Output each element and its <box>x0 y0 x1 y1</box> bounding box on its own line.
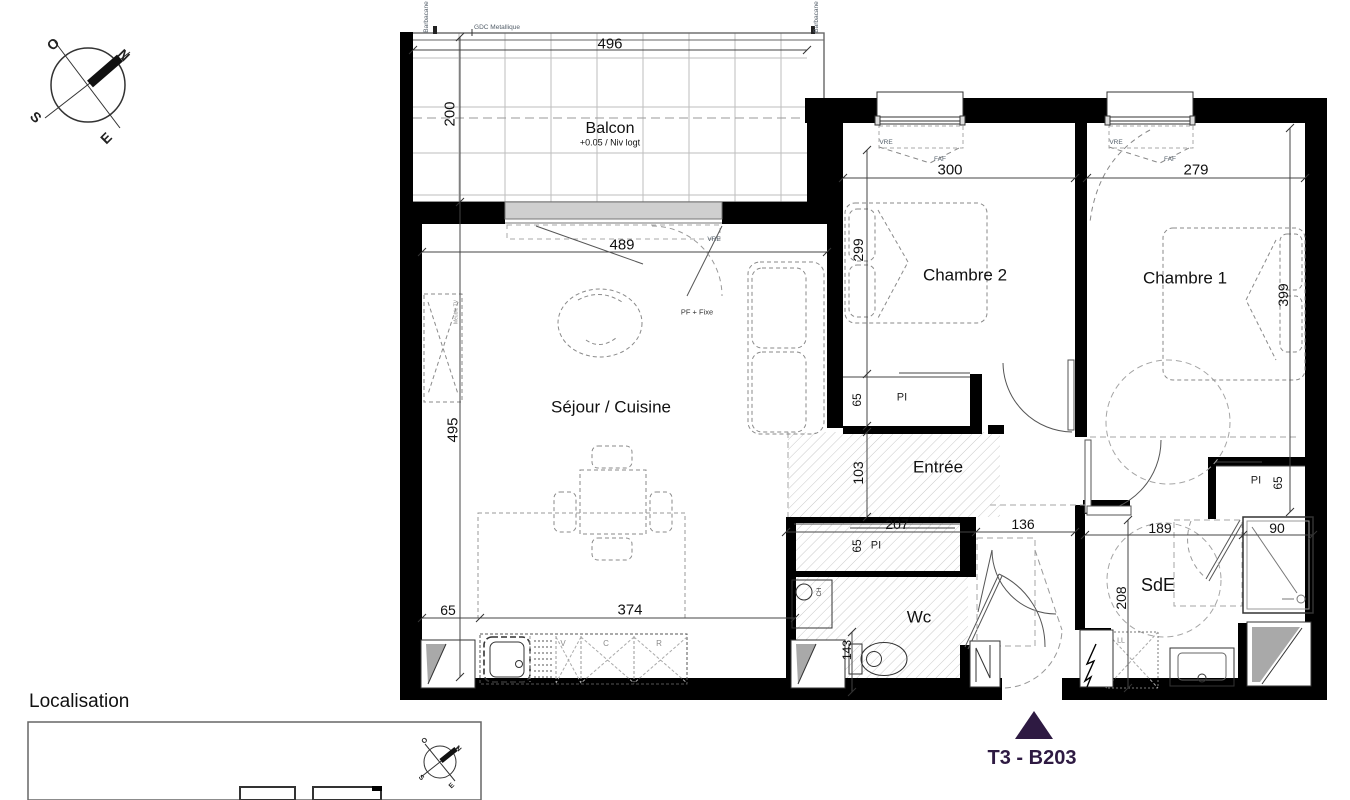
boiler-label: CH <box>817 588 823 597</box>
gdc-metallique-label: GDC Metallique <box>474 25 520 32</box>
washer-label: LL <box>1117 638 1125 645</box>
pf-fixe-label: PF + Fixe <box>681 308 713 316</box>
faf-label-bedroom2: FAF <box>934 157 946 164</box>
room-label-wc: Wc <box>907 609 932 626</box>
dim-balcony-door: 489 <box>609 238 634 253</box>
faf-label-bedroom1: FAF <box>1164 157 1176 164</box>
room-label-living: Séjour / Cuisine <box>551 399 671 416</box>
dim-shower-width: 90 <box>1269 521 1285 535</box>
dim-sde-depth: 208 <box>1114 586 1128 609</box>
dim-bedroom1-width: 279 <box>1183 163 1208 178</box>
floor-plan-svg <box>0 0 1350 800</box>
room-label-bedroom2: Chambre 2 <box>923 267 1007 284</box>
room-label-entry: Entrée <box>913 459 963 476</box>
vre-label-bedroom1: VRE <box>1109 140 1122 147</box>
cabinet-c-label: C <box>603 640 609 648</box>
localisation-heading: Localisation <box>29 692 129 711</box>
dim-entry-closet-depth: 65 <box>851 539 863 552</box>
localisation-box <box>28 722 481 800</box>
closet-label-bedroom2: PI <box>897 393 907 404</box>
dim-entry-closet-width: 207 <box>885 517 908 531</box>
tv-unit-label: Meuble TV <box>455 300 460 324</box>
dim-balcony-depth: 200 <box>443 101 458 126</box>
barbacane-label-left: Barbacane <box>424 1 431 32</box>
vre-label-bedroom2: VRE <box>879 140 892 147</box>
closet-label-bedroom1: PI <box>1251 476 1261 487</box>
dim-bedroom1-depth: 399 <box>1276 283 1290 306</box>
closet-label-entry: PI <box>871 541 881 552</box>
dim-kitchen-width: 374 <box>617 603 642 618</box>
electric-panel-icon <box>1080 630 1113 687</box>
window-swing-dashes <box>879 126 1193 222</box>
dim-wc-width: 143 <box>841 640 853 660</box>
cabinet-r-label: R <box>656 640 662 648</box>
room-label-shower-room: SdE <box>1141 576 1175 594</box>
cabinet-v-label: V <box>560 640 565 648</box>
dim-kitchen-left: 65 <box>440 603 456 617</box>
unit-marker-triangle <box>1015 711 1053 739</box>
dim-closet-bedroom2: 65 <box>851 393 863 406</box>
dim-entry-depth: 103 <box>851 461 865 484</box>
dim-closet-bedroom1: 65 <box>1272 476 1284 489</box>
barbacane-label-right: Barbacane <box>814 1 821 32</box>
balcony-level-label: +0.05 / Niv logt <box>580 139 640 148</box>
vre-label-balcony: VRE <box>707 237 720 244</box>
dim-sde-width: 189 <box>1148 521 1171 535</box>
floor-plan-page: { "compass": {"n":"N","s":"S","e":"E","o… <box>0 0 1350 800</box>
room-label-balcony: Balcon <box>586 121 635 137</box>
room-label-bedroom1: Chambre 1 <box>1143 270 1227 287</box>
unit-title: T3 - B203 <box>988 748 1077 768</box>
dim-living-depth: 495 <box>446 417 461 442</box>
dim-bedroom2-width: 300 <box>937 163 962 178</box>
dim-bedroom2-depth: 299 <box>851 238 865 261</box>
dim-balcony-width: 496 <box>597 37 622 52</box>
dim-entry-width: 136 <box>1011 517 1034 531</box>
